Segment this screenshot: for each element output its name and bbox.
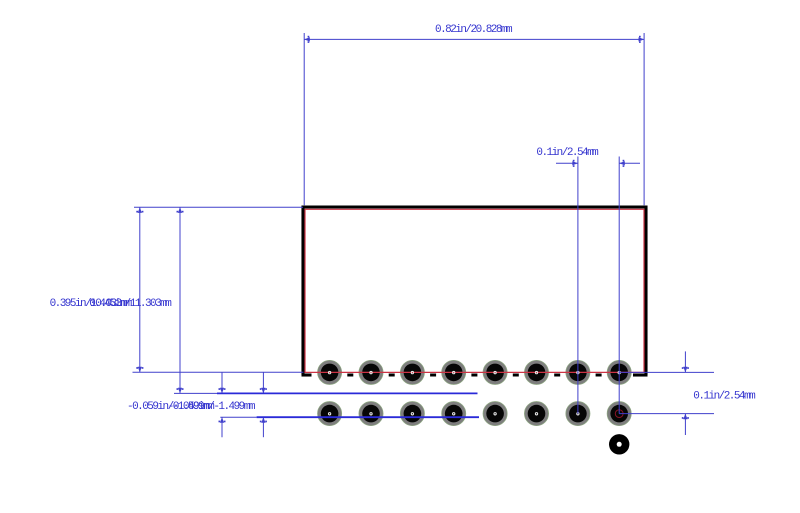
- svg-text:0.445in/11.303mm: 0.445in/11.303mm: [89, 298, 172, 310]
- svg-text:0.1in/2.54mm: 0.1in/2.54mm: [536, 147, 599, 159]
- svg-text:0.1in/2.54mm: 0.1in/2.54mm: [693, 390, 756, 402]
- svg-text:-0.059in/-1.499mm: -0.059in/-1.499mm: [168, 401, 256, 413]
- svg-text:0.82in/20.828mm: 0.82in/20.828mm: [435, 24, 513, 36]
